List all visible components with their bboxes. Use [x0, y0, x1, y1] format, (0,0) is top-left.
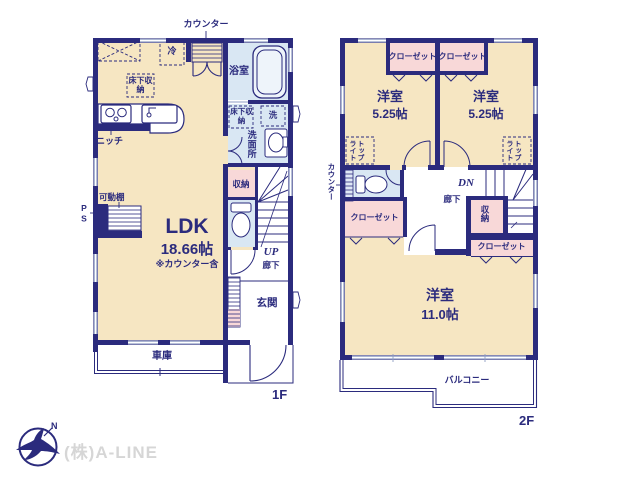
underfloor-storage-label-kitchen: 床下収納 — [128, 76, 153, 95]
floorplan-page: { "branding": { "company": "(株)A-LINE", … — [0, 0, 640, 480]
toplight-left-label: トップライト — [348, 140, 364, 163]
company-name: (株)A-LINE — [64, 438, 158, 463]
stairs-up-label: UP — [257, 246, 285, 259]
bedroom2-size-label: 5.25帖 — [456, 107, 516, 121]
niche-label: ニッチ — [96, 136, 123, 147]
storage-label-2f: 収納 — [480, 205, 490, 222]
closet-mid-left-label: クローゼット — [346, 213, 403, 222]
bedroom1-name-label: 洋室 — [360, 89, 420, 104]
washer-label: 洗 — [265, 110, 281, 120]
floor1-tag: 1F — [272, 387, 287, 402]
kitchen-sink-icon — [142, 105, 177, 123]
floor2-tag: 2F — [519, 413, 534, 428]
floor1-plan — [86, 31, 300, 383]
stairs-down-label: DN — [452, 177, 480, 190]
entrance-label: 玄関 — [247, 297, 287, 309]
fridge-label: 冷 — [162, 46, 182, 57]
bathroom-label: 浴室 — [222, 66, 256, 78]
bedroom2-name-label: 洋室 — [456, 89, 516, 104]
ldk-note-label: ※カウンター含 — [137, 259, 237, 270]
pipe-space-label: PS — [79, 203, 89, 224]
hallway-label-2f: 廊下 — [438, 194, 466, 204]
company-logo — [16, 428, 60, 466]
closet-mid-right-label: クローゼット — [473, 242, 530, 251]
closet-top-left-label: クローゼット — [387, 52, 438, 61]
compass-north-label: N — [51, 421, 58, 432]
bedroom-large-name-label: 洋室 — [405, 287, 475, 304]
ldk-name-label: LDK — [137, 215, 237, 240]
toplight-right-label: トップライト — [505, 140, 521, 163]
bedroom1-size-label: 5.25帖 — [360, 107, 420, 121]
bedroom-large-size-label: 11.0帖 — [405, 307, 475, 322]
washroom-label: 洗面所 — [246, 130, 257, 159]
bathtub-icon — [253, 46, 286, 98]
washbasin-icon — [265, 129, 288, 157]
counter-label-1f: カウンター — [176, 19, 236, 30]
underfloor-storage-label-washroom: 床下収納 — [230, 108, 253, 126]
stove-icon — [101, 105, 131, 123]
floorplan-drawing — [0, 0, 640, 480]
storage-label-1f: 収納 — [227, 179, 255, 189]
kitchen-counter-hatch — [192, 31, 222, 62]
porch-outline — [228, 345, 293, 383]
toilet-icon-2f — [356, 176, 387, 193]
ldk-size-label: 18.66帖 — [137, 241, 237, 259]
movable-shelf-label: 可動棚 — [99, 192, 125, 202]
balcony-label: バルコニー — [427, 375, 507, 386]
bath-sliding-door — [228, 100, 248, 104]
closet-top-right-label: クローゼット — [437, 52, 488, 61]
front-door-arc — [250, 345, 286, 381]
counter-label-2f: カウンター — [326, 163, 335, 201]
garage-label: 車庫 — [140, 351, 184, 363]
hallway-label-1f: 廊下 — [257, 260, 285, 270]
